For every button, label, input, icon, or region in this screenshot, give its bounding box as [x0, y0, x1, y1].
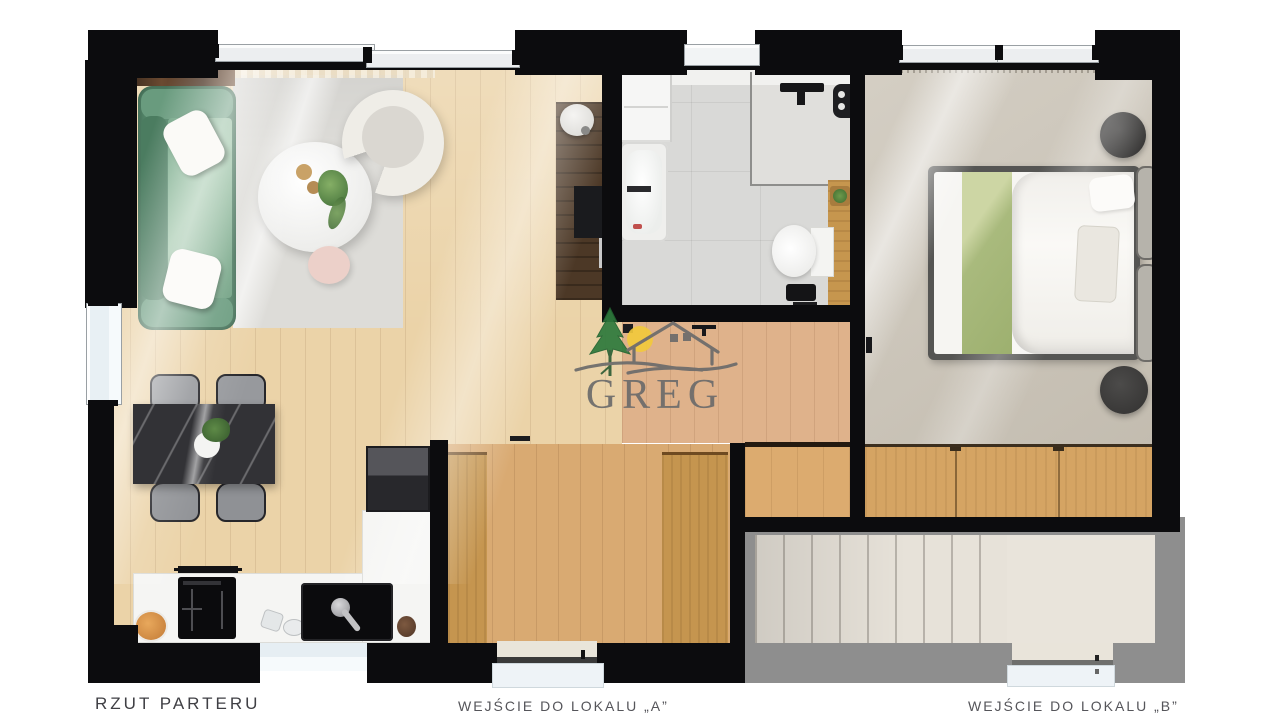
bed-small-pillow	[1074, 225, 1120, 303]
shower-corner-shelf	[833, 84, 850, 118]
stairs-steps	[755, 535, 1007, 643]
wall	[850, 30, 865, 532]
door-b-handle-dot	[1095, 655, 1099, 661]
wall	[730, 443, 745, 683]
wall	[85, 60, 137, 308]
toilet-brush-set	[786, 284, 816, 301]
wall	[730, 517, 1162, 532]
bedroom-wardrobe-joint	[1058, 447, 1060, 518]
landing-b-floor	[745, 447, 850, 517]
door-b-handle-dot	[1095, 669, 1099, 674]
side-table-pink	[308, 246, 350, 284]
window-bedroom-1	[899, 45, 1001, 63]
kitchen-window-bottom	[260, 643, 367, 683]
shower-head-stem	[797, 92, 805, 105]
plant-on-shelf-leaves	[833, 189, 847, 203]
mug	[397, 616, 416, 637]
wall	[1152, 60, 1180, 532]
desk-stool-knob	[581, 126, 590, 135]
window-living-2	[366, 50, 520, 68]
nightstand	[1100, 366, 1148, 414]
window-mullion	[896, 45, 903, 60]
bathtub-accent	[633, 224, 642, 229]
sofa-backrest	[141, 116, 167, 300]
window-mullion	[212, 44, 219, 58]
shower-head-bar	[780, 83, 824, 92]
wardrobe-handle-mark	[950, 447, 961, 451]
window-left	[86, 303, 122, 405]
window-mullion	[363, 47, 372, 63]
window-bedroom-2	[997, 45, 1099, 63]
cooktop-burner-line	[182, 608, 202, 610]
bedroom-door-handle	[866, 337, 872, 353]
dining-plant	[202, 418, 230, 442]
bedroom-wardrobe-strip	[865, 444, 1153, 521]
wardrobe-handle-mark	[1053, 447, 1064, 451]
bathtub-faucet	[627, 186, 651, 192]
watermark-brand-text: GREG	[586, 372, 724, 418]
bed-pillow-fold	[1088, 173, 1136, 212]
plan-title: RZUT PARTERU	[95, 694, 260, 714]
cooktop-control-strip	[183, 581, 221, 585]
toilet-bowl	[772, 225, 816, 277]
cooktop-burner-line	[221, 591, 223, 629]
shelf-dot	[838, 91, 845, 98]
armchair-seat	[362, 106, 424, 168]
stairs-landing	[1007, 535, 1155, 643]
entrance-b-label: WEJŚCIE DO LOKALU „B”	[968, 698, 1179, 714]
nightstand	[1100, 112, 1146, 158]
window-mullion	[512, 50, 520, 65]
ceiling-fixture-mark	[510, 436, 530, 441]
bedroom-wardrobe-joint	[955, 447, 957, 518]
bathtub-basin	[626, 150, 662, 234]
watermark-logo: GREG	[570, 306, 740, 418]
tall-cabinet-fridge	[366, 446, 430, 512]
cooktop-burner-line	[191, 589, 193, 631]
shelf-dot	[838, 103, 845, 110]
dining-chair	[216, 482, 266, 522]
dining-chair	[150, 482, 200, 522]
wall	[597, 643, 745, 683]
vestibule-wardrobe-left	[448, 452, 487, 643]
wall	[755, 30, 902, 75]
hall-landing-divider	[745, 442, 850, 447]
wall	[88, 643, 260, 683]
cooktop-rail	[178, 566, 238, 573]
entrance-a-label: WEJŚCIE DO LOKALU „A”	[458, 698, 669, 714]
window-living-1	[215, 44, 375, 62]
floor-plan-page: GREG RZUT PARTERU WEJŚCIE DO LOKALU „A” …	[0, 0, 1280, 720]
window-bathroom	[684, 44, 760, 66]
window-mullion	[88, 400, 118, 406]
entrance-a-sill	[492, 663, 604, 688]
fruit-bowl	[136, 612, 166, 640]
window-mullion	[995, 45, 1003, 60]
desk-black-panel	[574, 186, 602, 238]
shower-glass-left	[750, 72, 752, 186]
entrance-b-door	[1012, 643, 1113, 665]
window-mullion	[1092, 45, 1099, 60]
door-a-handle-dot	[581, 650, 585, 659]
vestibule-wardrobe-right	[662, 452, 728, 643]
table-decor-tray	[296, 164, 312, 180]
bed-green-runner	[962, 172, 1012, 354]
wall	[515, 30, 687, 75]
window-mullion	[88, 300, 118, 306]
washer-lid-line	[624, 106, 668, 108]
wall	[602, 30, 622, 322]
wall	[430, 440, 448, 683]
